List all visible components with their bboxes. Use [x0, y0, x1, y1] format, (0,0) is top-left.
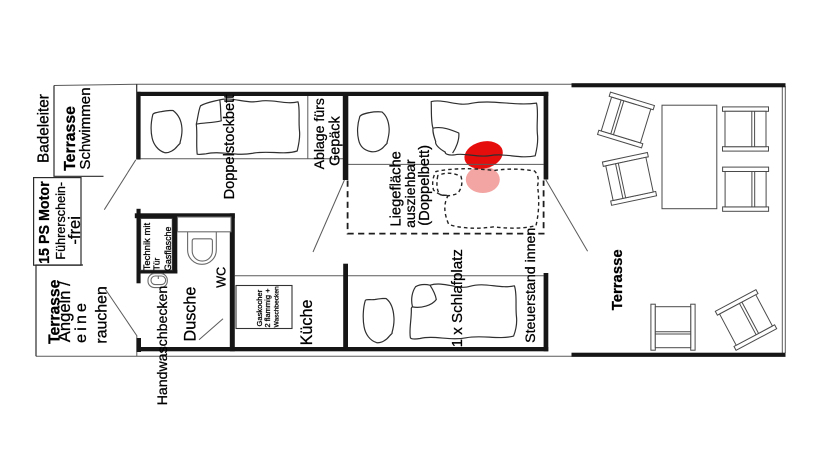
svg-text:2 flammig +: 2 flammig +: [263, 288, 272, 328]
svg-text:Doppelstockbett: Doppelstockbett: [222, 95, 238, 200]
svg-text:Gepäck: Gepäck: [328, 116, 344, 166]
svg-text:Tür: Tür: [151, 258, 161, 271]
svg-text:Terrasse: Terrasse: [610, 249, 626, 310]
svg-text:WC: WC: [215, 267, 229, 288]
svg-text:(Doppelbett): (Doppelbett): [417, 145, 433, 226]
svg-text:Ablage fürs: Ablage fürs: [311, 98, 327, 169]
svg-text:Angeln /: Angeln /: [55, 281, 74, 342]
svg-text:Dusche: Dusche: [181, 287, 199, 342]
svg-text:15 PS Motor: 15 PS Motor: [37, 181, 53, 264]
svg-text:eine: eine: [73, 300, 90, 343]
svg-text:Waschbecken: Waschbecken: [274, 286, 281, 328]
svg-text:Küche: Küche: [298, 299, 316, 345]
svg-text:Handwaschbecken: Handwaschbecken: [154, 286, 170, 405]
svg-text:Gasflasche: Gasflasche: [163, 227, 173, 271]
svg-text:-frei: -frei: [65, 216, 84, 245]
svg-text:rauchen: rauchen: [93, 286, 110, 343]
svg-text:Schwimmen: Schwimmen: [77, 87, 94, 169]
svg-text:Badeleiter: Badeleiter: [36, 94, 53, 163]
svg-text:Steuerstand innen: Steuerstand innen: [523, 228, 539, 343]
svg-text:ausziehbar: ausziehbar: [402, 159, 418, 228]
svg-text:1 x Schlafplatz: 1 x Schlafplatz: [449, 249, 466, 347]
